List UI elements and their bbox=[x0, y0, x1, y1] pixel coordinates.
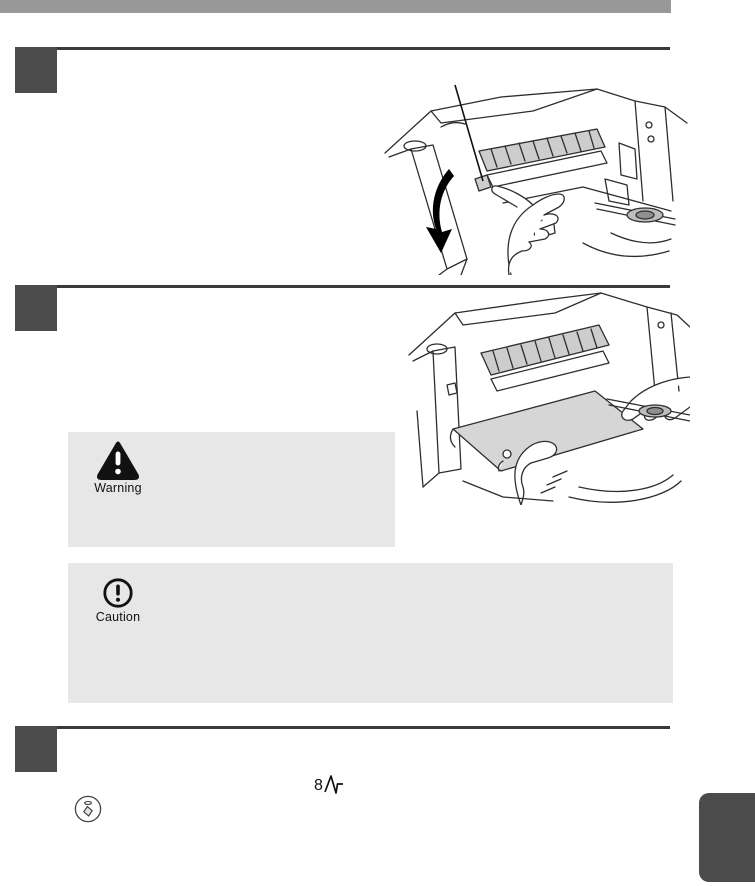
chapter-tab bbox=[699, 793, 755, 882]
step1-number-box bbox=[15, 47, 57, 93]
step3-rule bbox=[17, 726, 670, 729]
jam-indicator-digit: 8 bbox=[314, 777, 323, 794]
caution-label: Caution bbox=[82, 610, 154, 624]
step1-rule bbox=[17, 47, 670, 50]
start-key-icon bbox=[73, 794, 103, 824]
warning-label: Warning bbox=[82, 481, 154, 495]
callout-line bbox=[455, 85, 483, 181]
warning-triangle-icon bbox=[96, 440, 140, 480]
caution-box: Caution bbox=[68, 563, 673, 703]
step3-number-box bbox=[15, 726, 57, 772]
step2-rule bbox=[17, 285, 670, 288]
warning-box: Warning bbox=[68, 432, 395, 547]
jam-indicator-icon: 8 bbox=[314, 772, 348, 796]
page-header-bar bbox=[0, 0, 671, 13]
caution-circle-icon bbox=[102, 577, 134, 609]
step2-number-box bbox=[15, 285, 57, 331]
manual-page: Warning Caution 8 bbox=[0, 0, 755, 886]
figure-step1-rotate-fusing-lever bbox=[383, 83, 690, 275]
figure-step2-remove-jammed-paper bbox=[403, 291, 690, 505]
